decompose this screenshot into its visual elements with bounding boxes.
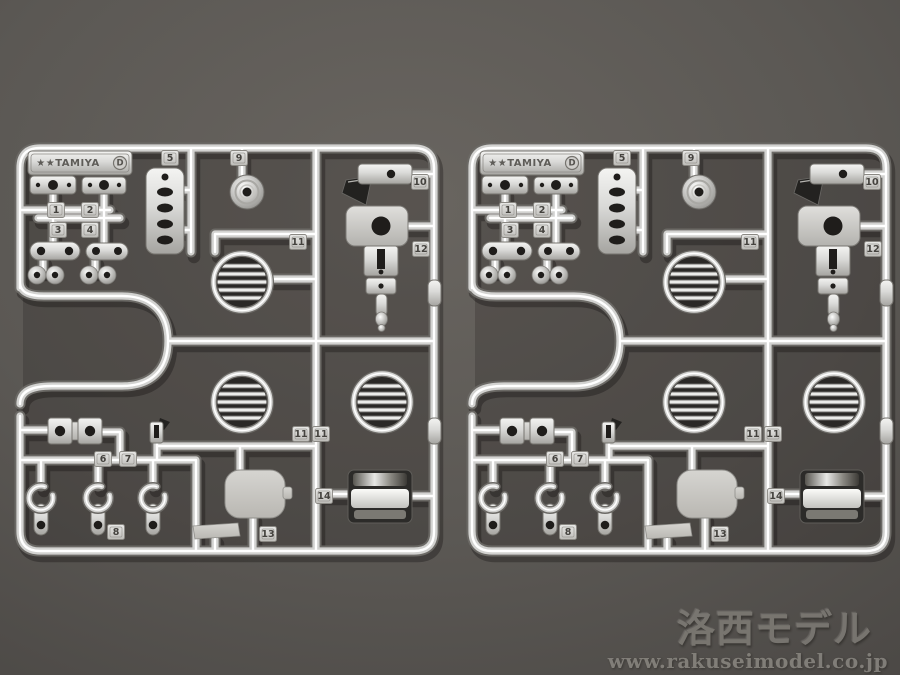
sprue-left bbox=[20, 148, 441, 556]
photo-of-chrome-sprues: ★★TAMIYA D bbox=[0, 0, 900, 675]
sprue-right bbox=[472, 148, 893, 556]
